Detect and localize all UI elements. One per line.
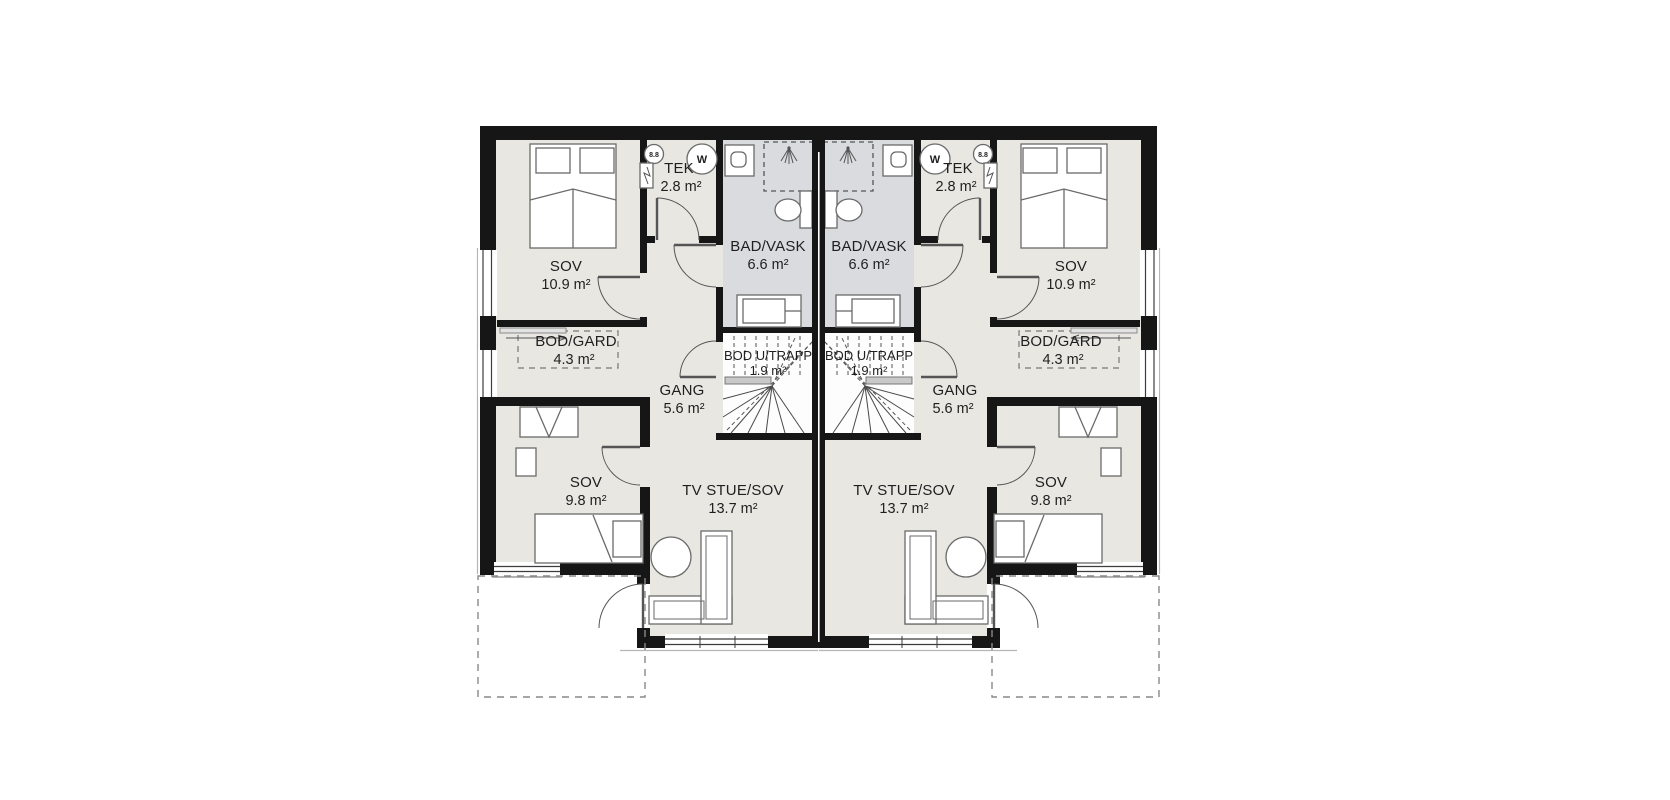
room-label-sov-second-right: SOV bbox=[1035, 474, 1067, 491]
window-livingroom bbox=[665, 634, 768, 649]
room-label-bodgard-right: BOD/GARD bbox=[1020, 333, 1102, 350]
room-area-bad-right: 6.6 m² bbox=[848, 257, 889, 273]
room-area-sov-second-left: 9.8 m² bbox=[565, 493, 606, 509]
room-label-tv-right: TV STUE/SOV bbox=[853, 482, 954, 499]
electrical-panel-icon bbox=[640, 163, 653, 188]
room-label-tek-left: TEK bbox=[664, 160, 694, 177]
water-heater-label-left: W bbox=[697, 154, 708, 166]
room-label-sov-main-right: SOV bbox=[1055, 258, 1087, 275]
room-label-tv-left: TV STUE/SOV bbox=[682, 482, 783, 499]
room-label-gang-left: GANG bbox=[660, 382, 705, 399]
room-label-tek-right: TEK bbox=[943, 160, 973, 177]
window-storage bbox=[478, 350, 497, 397]
room-area-gang-right: 5.6 m² bbox=[932, 401, 973, 417]
room-area-bad-left: 6.6 m² bbox=[747, 257, 788, 273]
room-area-sov-main-right: 10.9 m² bbox=[1046, 277, 1095, 293]
room-area-gang-left: 5.6 m² bbox=[663, 401, 704, 417]
single-bed bbox=[535, 514, 643, 563]
room-area-tek-right: 2.8 m² bbox=[935, 179, 976, 195]
room-area-bodgard-right: 4.3 m² bbox=[1042, 352, 1083, 368]
room-area-tek-left: 2.8 m² bbox=[660, 179, 701, 195]
unit-left bbox=[478, 126, 819, 697]
vanity-sink bbox=[737, 295, 801, 327]
terrace-outline bbox=[478, 576, 645, 697]
double-bed bbox=[530, 144, 616, 248]
room-label-sov-second-left: SOV bbox=[570, 474, 602, 491]
desk bbox=[516, 448, 536, 476]
floor-plan-page: SOV 10.9 m² TEK 2.8 m² BAD/VASK 6.6 m² B… bbox=[0, 0, 1670, 800]
party-wall bbox=[812, 126, 825, 648]
window-bedroom-second bbox=[492, 562, 562, 577]
room-label-bad-right: BAD/VASK bbox=[831, 238, 907, 255]
room-label-bodgard-left: BOD/GARD bbox=[535, 333, 617, 350]
room-label-bodutrapp-right: BOD U/TRAPP bbox=[825, 348, 913, 363]
room-area-bodutrapp-left: 1.9 m² bbox=[750, 363, 788, 378]
room-area-sov-main-left: 10.9 m² bbox=[541, 277, 590, 293]
room-label-gang-right: GANG bbox=[933, 382, 978, 399]
detector-label-right: 8.8 bbox=[978, 152, 988, 159]
round-table bbox=[651, 537, 691, 577]
water-heater-label-right: W bbox=[930, 154, 941, 166]
room-area-bodutrapp-right: 1.9 m² bbox=[851, 363, 889, 378]
floor-plan-svg: SOV 10.9 m² TEK 2.8 m² BAD/VASK 6.6 m² B… bbox=[0, 0, 1670, 800]
room-area-bodgard-left: 4.3 m² bbox=[553, 352, 594, 368]
wardrobe bbox=[520, 407, 578, 437]
floor-drain bbox=[725, 145, 754, 176]
room-label-sov-main-left: SOV bbox=[550, 258, 582, 275]
door-entry bbox=[599, 584, 650, 628]
room-area-sov-second-right: 9.8 m² bbox=[1030, 493, 1071, 509]
window-bedroom-main bbox=[478, 250, 497, 316]
room-label-bodutrapp-left: BOD U/TRAPP bbox=[724, 348, 812, 363]
detector-label-left: 8.8 bbox=[649, 152, 659, 159]
unit-right bbox=[819, 126, 1160, 697]
room-area-tv-left: 13.7 m² bbox=[708, 501, 757, 517]
room-area-tv-right: 13.7 m² bbox=[879, 501, 928, 517]
stair-landing-edge bbox=[725, 377, 771, 384]
room-label-bad-left: BAD/VASK bbox=[730, 238, 806, 255]
